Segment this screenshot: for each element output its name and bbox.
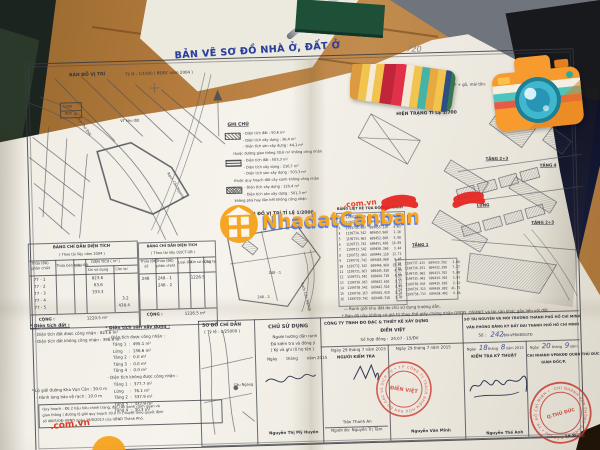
signature-technical <box>470 376 527 393</box>
camera-sticker <box>492 48 596 148</box>
signature-owner <box>265 374 315 382</box>
registry-stamp: CHI NHÁNH VĂN PHÒNG ĐĂNG KÝ ĐẤT ĐAI • TP… <box>524 376 598 450</box>
signatures <box>265 361 527 403</box>
building-icon <box>217 201 260 244</box>
watermark: NhadatCanban .com.vn <box>217 201 261 248</box>
signature-inspector <box>353 365 378 381</box>
stamp-center-text: Q.THỦ ĐỨC <box>546 405 577 421</box>
photo-of-survey-document: ường w: 09 gma <box>0 0 600 450</box>
stamp-center-text: ĐIỀN VIỆT <box>390 382 420 395</box>
striped-washi-sticker <box>350 64 460 116</box>
